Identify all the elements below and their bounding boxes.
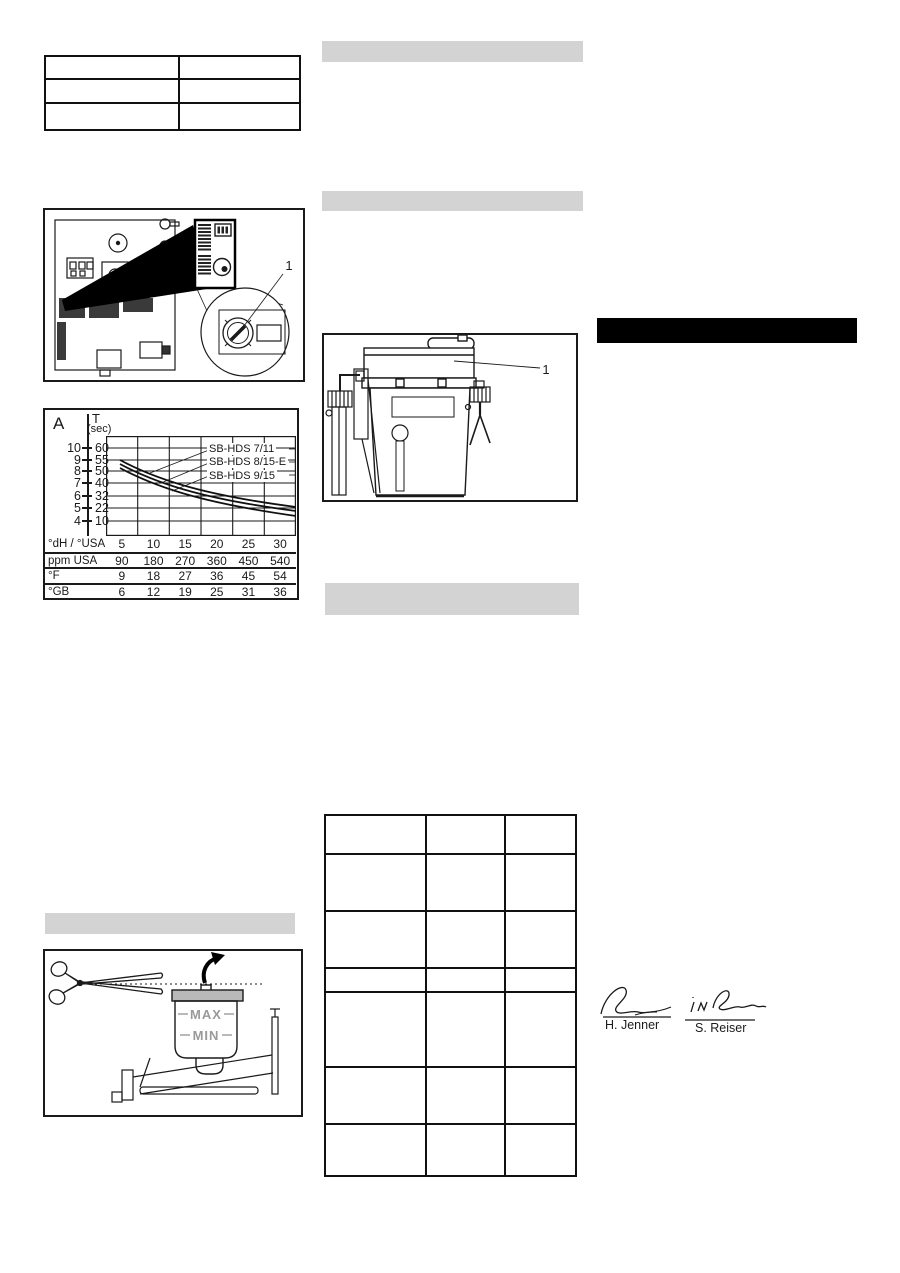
sight-tube [396, 441, 404, 491]
table-cell [46, 104, 180, 129]
series-label: SB-HDS 8/15-E [207, 456, 288, 468]
cell: 19 [169, 585, 201, 599]
cell: 31 [233, 585, 265, 599]
cell: 15 [169, 537, 201, 551]
cell: 360 [201, 554, 233, 568]
cell: 270 [169, 554, 201, 568]
container-lid [172, 990, 243, 1001]
table-cell [427, 993, 506, 1068]
clamp-buckle [438, 379, 446, 387]
cell: 5 [106, 537, 138, 551]
remove-arrow-head [211, 952, 225, 965]
cell: 54 [264, 569, 296, 583]
circuit-board-drawing: 1 [45, 210, 303, 380]
ppm-row: ppm USA 90 180 270 360 450 540 [45, 552, 296, 568]
cell: 12 [138, 585, 170, 599]
empty-spec-table [44, 55, 301, 131]
table-cell [427, 969, 506, 993]
table-cell [427, 912, 506, 969]
circuit-board-figure: 1 [43, 208, 305, 382]
table-cell [427, 1125, 506, 1175]
table-cell [180, 57, 299, 80]
table-cell [326, 969, 427, 993]
cell: 180 [138, 554, 170, 568]
series-label: SB-HDS 7/11 [207, 443, 276, 455]
table-cell [326, 993, 427, 1068]
row-label: °dH / °USA [45, 538, 106, 550]
water-hardness-chart: A T (sec) 10 9 8 7 6 5 4 60 55 50 40 32 … [43, 408, 299, 600]
section-heading-bar [322, 41, 583, 62]
table-cell [506, 855, 575, 912]
table-cell [506, 816, 575, 855]
y-axis-a-label: A [53, 414, 64, 434]
detergent-tank-figure: 1 [322, 333, 578, 502]
table-cell [326, 816, 427, 855]
table-cell [427, 855, 506, 912]
signature-block: H. Jenner S. Reiser [595, 978, 795, 1040]
table-cell [46, 80, 180, 104]
table-cell [180, 80, 299, 104]
row-label: °F [45, 570, 106, 582]
table-cell [180, 104, 299, 129]
hardness-conversion-table: °dH / °USA 5 10 15 20 25 30 ppm USA 90 1… [45, 536, 296, 598]
cell: 45 [233, 569, 265, 583]
callout-1-label: 1 [542, 362, 549, 377]
gb-row: °GB 6 12 19 25 31 36 [45, 583, 296, 599]
min-level-label: MIN [193, 1028, 220, 1043]
section-heading-bar [325, 583, 579, 615]
series-label: SB-HDS 9/15 [207, 470, 277, 482]
reiser-signature-squiggle [713, 991, 766, 1010]
pcb-connector [97, 350, 121, 368]
table-cell [326, 855, 427, 912]
magnifier-circle [201, 288, 289, 376]
row-label: ppm USA [45, 555, 106, 567]
cell: 30 [264, 537, 296, 551]
clamp-band [362, 378, 476, 388]
scissors-handle [49, 959, 69, 978]
detergent-tank-drawing: 1 [324, 335, 576, 500]
a-tick: 4 [45, 513, 81, 529]
cap-knob [458, 335, 467, 341]
cell: 25 [201, 585, 233, 599]
scissors-pivot [78, 981, 83, 986]
cell: 27 [169, 569, 201, 583]
empty-maintenance-table [324, 814, 577, 1177]
table-cell [46, 57, 180, 80]
cell: 20 [201, 537, 233, 551]
sight-glass [392, 425, 408, 441]
mounting-bracket [112, 1009, 280, 1102]
tank-rim [364, 348, 474, 378]
y-axis-sec-label: (sec) [87, 423, 111, 435]
table-cell [326, 1068, 427, 1125]
callout-1-label: 1 [285, 258, 292, 273]
clamp-buckle [396, 379, 404, 387]
cell: 25 [233, 537, 265, 551]
x-axis-row: °dH / °USA 5 10 15 20 25 30 [45, 536, 296, 552]
cell: 540 [264, 554, 296, 568]
cell: 9 [106, 569, 138, 583]
reiser-iv-mark [691, 997, 694, 1012]
jenner-signature-squiggle [601, 987, 657, 1014]
cell: 36 [201, 569, 233, 583]
cell: 90 [106, 554, 138, 568]
cell: 10 [138, 537, 170, 551]
cell: 36 [264, 585, 296, 599]
table-cell [506, 993, 575, 1068]
cell: 18 [138, 569, 170, 583]
cell: 6 [106, 585, 138, 599]
table-cell [326, 1125, 427, 1175]
table-cell [506, 1068, 575, 1125]
table-cell [427, 1068, 506, 1125]
tank-label-plate [392, 397, 454, 417]
table-cell [506, 969, 575, 993]
row-label: °GB [45, 586, 106, 598]
dip-switch-bars [198, 224, 211, 275]
cell: 450 [233, 554, 265, 568]
signature-name-right: S. Reiser [695, 1021, 746, 1035]
float-container-figure: MAX MIN [43, 949, 303, 1117]
scissors-handle [47, 987, 67, 1006]
table-cell [506, 1125, 575, 1175]
max-level-label: MAX [190, 1007, 222, 1022]
pcb-connector [140, 342, 162, 358]
signature-name-left: H. Jenner [605, 1018, 659, 1032]
redacted-heading-bar [597, 318, 857, 343]
f-row: °F 9 18 27 36 45 54 [45, 567, 296, 583]
table-cell [326, 912, 427, 969]
section-heading-bar [322, 191, 583, 211]
magnifier-line [197, 289, 207, 311]
table-cell [427, 816, 506, 855]
table-cell [506, 912, 575, 969]
float-container-drawing: MAX MIN [45, 951, 301, 1115]
section-heading-bar [45, 913, 295, 934]
manual-page: 1 A T (sec) 10 9 8 7 6 5 4 60 55 50 40 3… [0, 0, 900, 1273]
